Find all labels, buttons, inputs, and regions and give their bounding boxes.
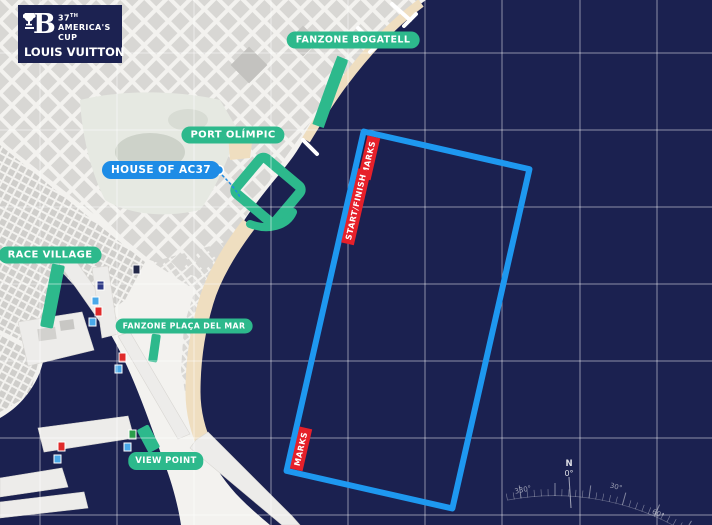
house-of-ac37-label: HOUSE OF AC37	[102, 161, 220, 179]
logo-brand: LOUIS VUITTON	[24, 45, 116, 59]
race-course-map: N 0° 330° 30° 60° MARKS START/FINISH MAR…	[0, 0, 712, 525]
logo-top-row: B 37TH AMERICA'S CUP	[24, 10, 116, 44]
fanzone-placa-del-mar-label: FANZONE PLAÇA DEL MAR	[116, 319, 253, 334]
port-olimpic-label: PORT OLÍMPIC	[181, 127, 284, 144]
race-village-label: RACE VILLAGE	[0, 247, 101, 264]
wharf-building	[59, 319, 74, 331]
compass-north-letter: N	[565, 459, 572, 469]
logo-cup: CUP	[58, 33, 111, 43]
logo-letter-b: B	[33, 10, 56, 40]
view-point-label: VIEW POINT	[128, 452, 203, 470]
fanzone-bogatell-label: FANZONE BOGATELL	[287, 32, 420, 49]
logo-monogram: B	[24, 10, 52, 42]
logo-th: TH	[70, 13, 78, 19]
logo-cup-text: 37TH AMERICA'S CUP	[58, 12, 111, 42]
logo-37: 37	[58, 14, 70, 23]
lv-americas-cup-logo: B 37TH AMERICA'S CUP LOUIS VUITTON	[18, 5, 122, 63]
logo-americas: AMERICA'S	[58, 23, 111, 33]
compass-north-deg: 0°	[564, 469, 573, 478]
